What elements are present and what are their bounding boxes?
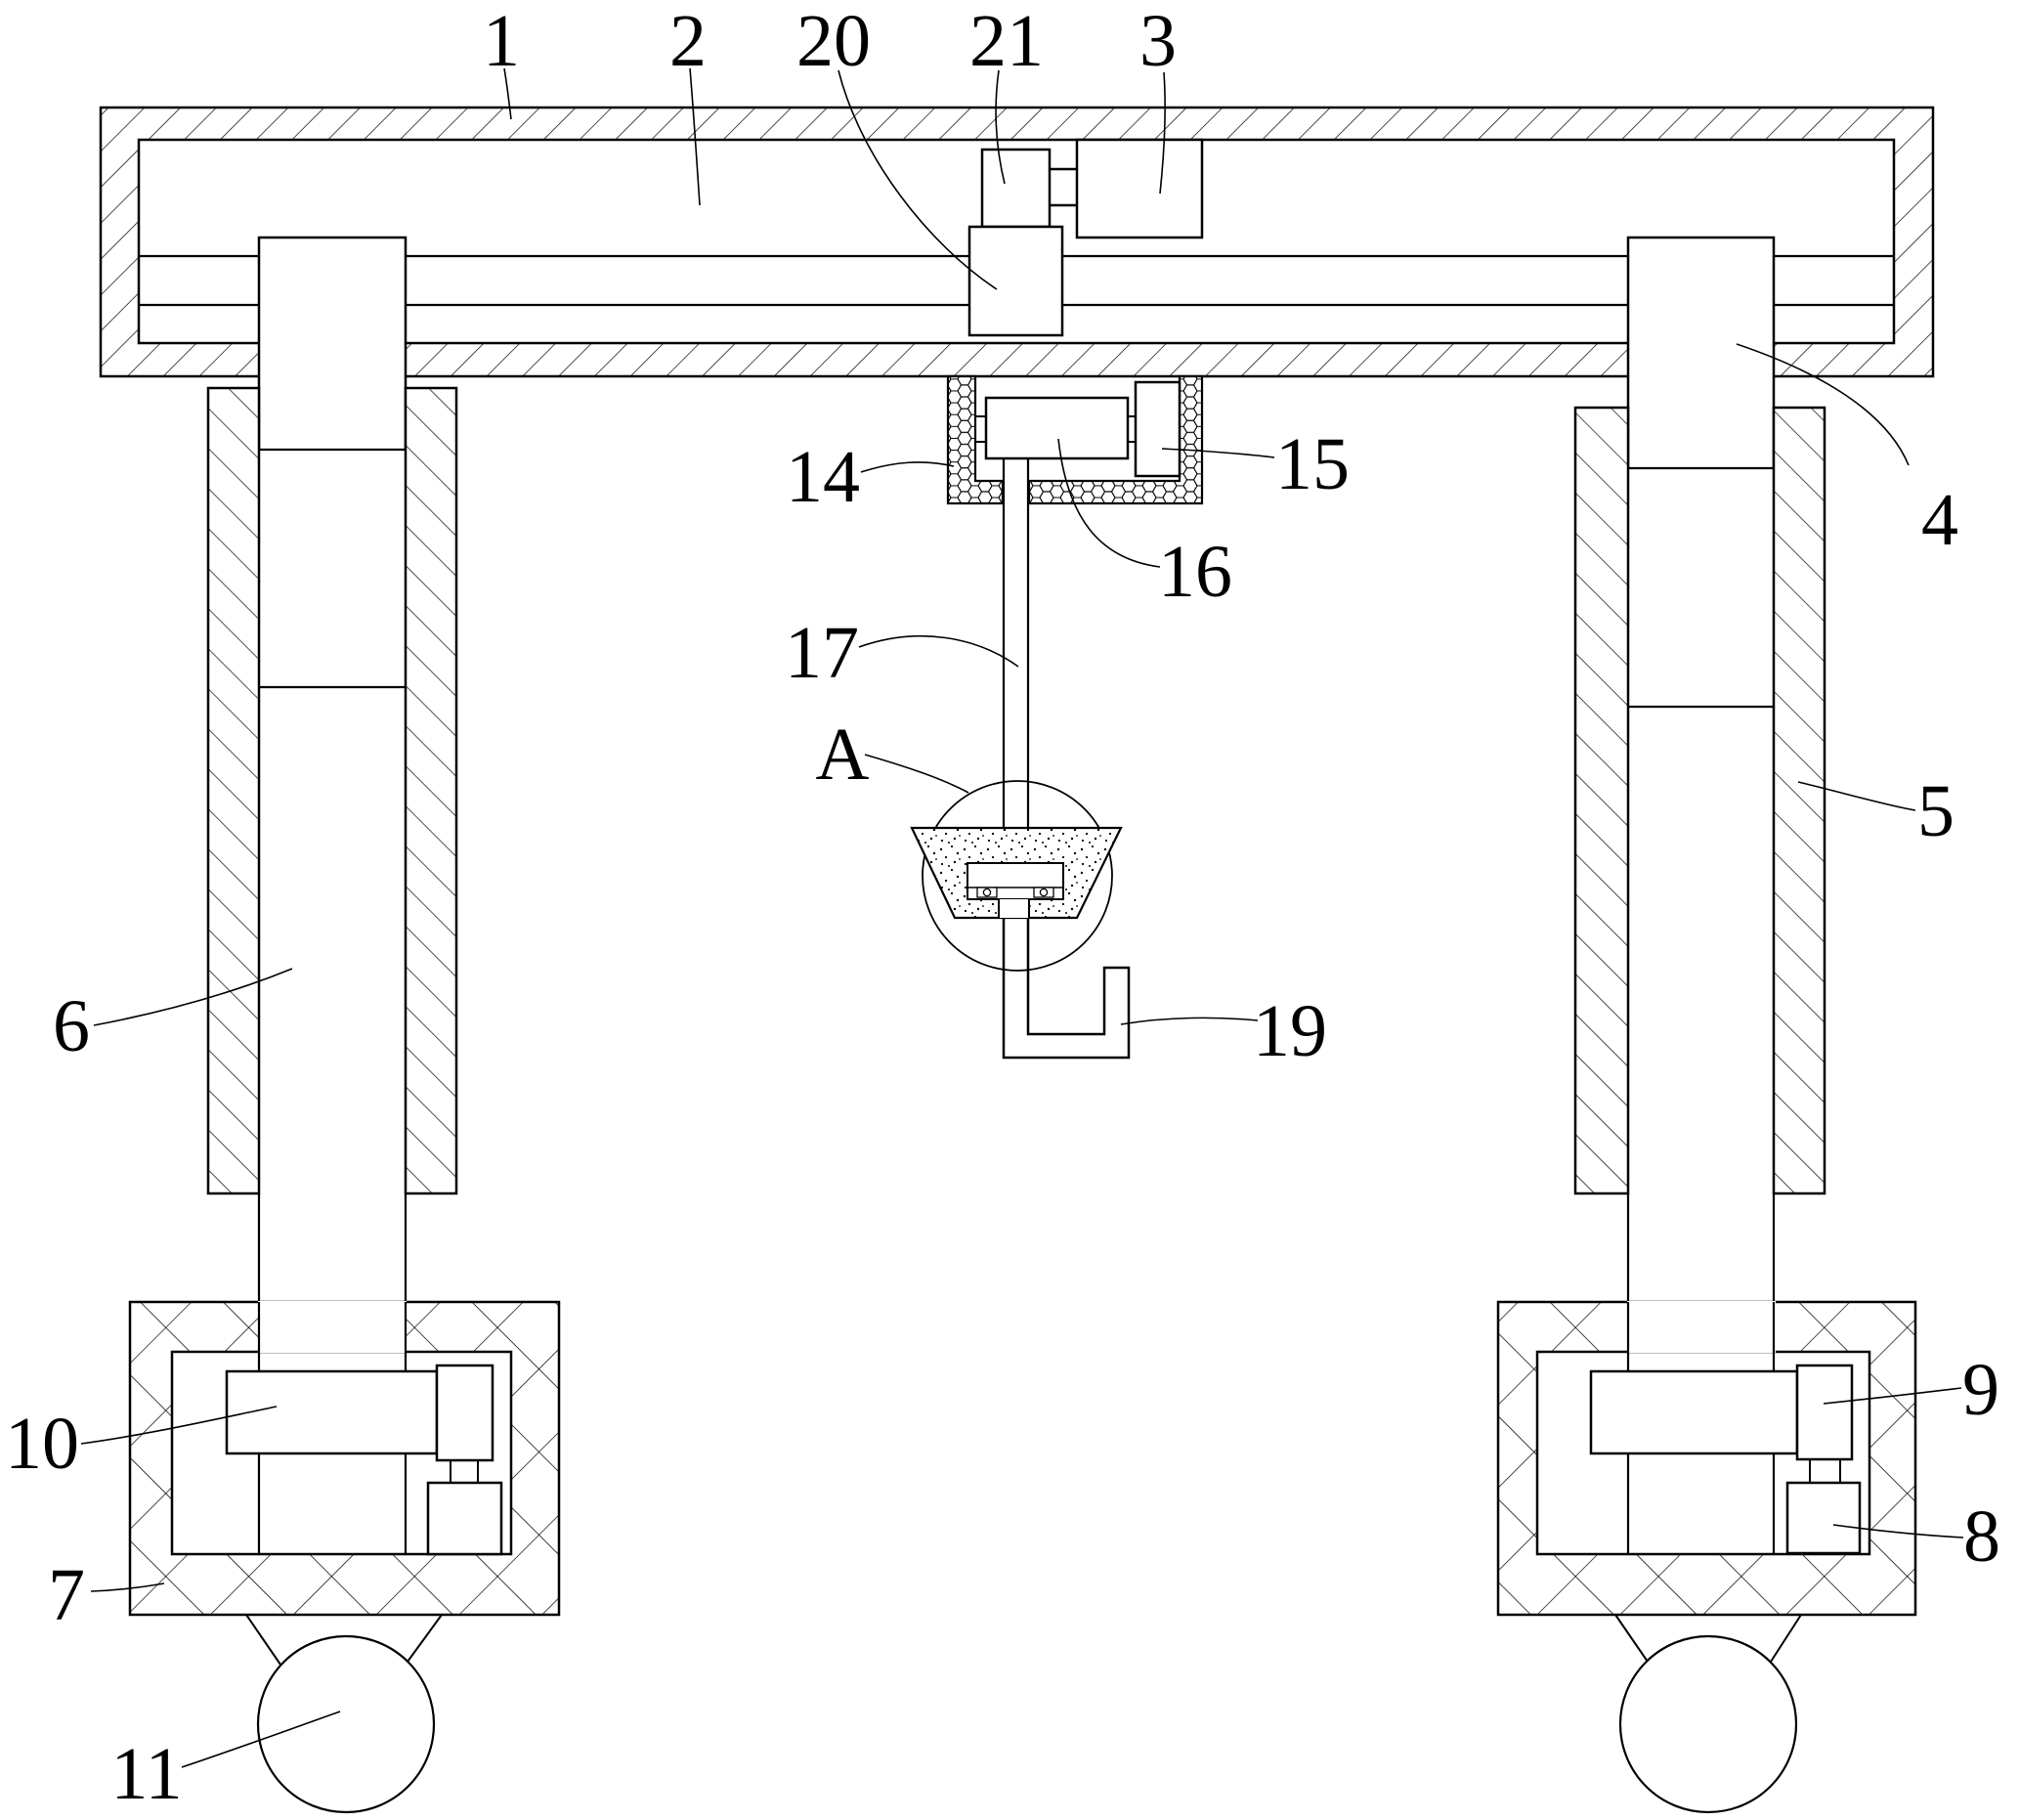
label-6: 6 — [53, 985, 90, 1067]
left-leg-outer-wall-left — [208, 388, 259, 1193]
right-drive-block — [1591, 1371, 1797, 1453]
label-8: 8 — [1963, 1495, 2000, 1578]
label-2: 2 — [669, 0, 707, 82]
left-column-passage — [258, 1301, 407, 1353]
left-slider-block — [259, 238, 406, 450]
label-20: 20 — [796, 0, 871, 82]
label-1: 1 — [483, 0, 520, 82]
block-20-carriage — [969, 227, 1062, 335]
right-leg-outer-wall-left — [1575, 408, 1628, 1193]
left-leg-outer-wall-right — [406, 388, 456, 1193]
right-lower-block-8 — [1787, 1483, 1860, 1553]
label-3: 3 — [1139, 0, 1177, 82]
nut-bottom-notch — [999, 899, 1029, 918]
drawing-svg: 1 2 20 21 3 4 5 6 7 8 9 10 11 14 15 16 1… — [0, 0, 2019, 1820]
label-15: 15 — [1275, 423, 1350, 505]
right-wheel — [1620, 1636, 1796, 1812]
patent-drawing-page: 1 2 20 21 3 4 5 6 7 8 9 10 11 14 15 16 1… — [0, 0, 2019, 1820]
right-side-cylinder-9 — [1797, 1365, 1852, 1459]
motor-16 — [986, 398, 1128, 458]
label-4: 4 — [1921, 479, 1958, 561]
right-column-passage — [1627, 1301, 1776, 1353]
label-19: 19 — [1253, 990, 1327, 1072]
label-14: 14 — [786, 436, 860, 518]
bearing-right-ball-icon — [1040, 888, 1047, 895]
label-7: 7 — [48, 1554, 85, 1636]
right-base — [1498, 1301, 1915, 1615]
label-16: 16 — [1158, 531, 1232, 613]
left-drive-block-10 — [227, 1371, 437, 1453]
label-11: 11 — [110, 1733, 182, 1815]
label-5: 5 — [1917, 770, 1955, 852]
block-3-motor — [1077, 140, 1202, 238]
label-9: 9 — [1962, 1349, 1999, 1431]
left-wheel-11 — [258, 1636, 434, 1812]
label-17: 17 — [785, 612, 859, 694]
right-leg-outer-wall-right — [1774, 408, 1825, 1193]
label-21: 21 — [969, 0, 1044, 82]
block-21 — [982, 150, 1050, 227]
left-base — [130, 1301, 559, 1615]
left-lower-block — [428, 1483, 501, 1554]
label-A: A — [816, 714, 870, 796]
label-10: 10 — [5, 1403, 79, 1485]
block-15 — [1136, 382, 1180, 476]
left-side-cylinder — [437, 1365, 493, 1460]
right-slider-block-4 — [1628, 238, 1774, 468]
bearing-left-ball-icon — [983, 888, 990, 895]
